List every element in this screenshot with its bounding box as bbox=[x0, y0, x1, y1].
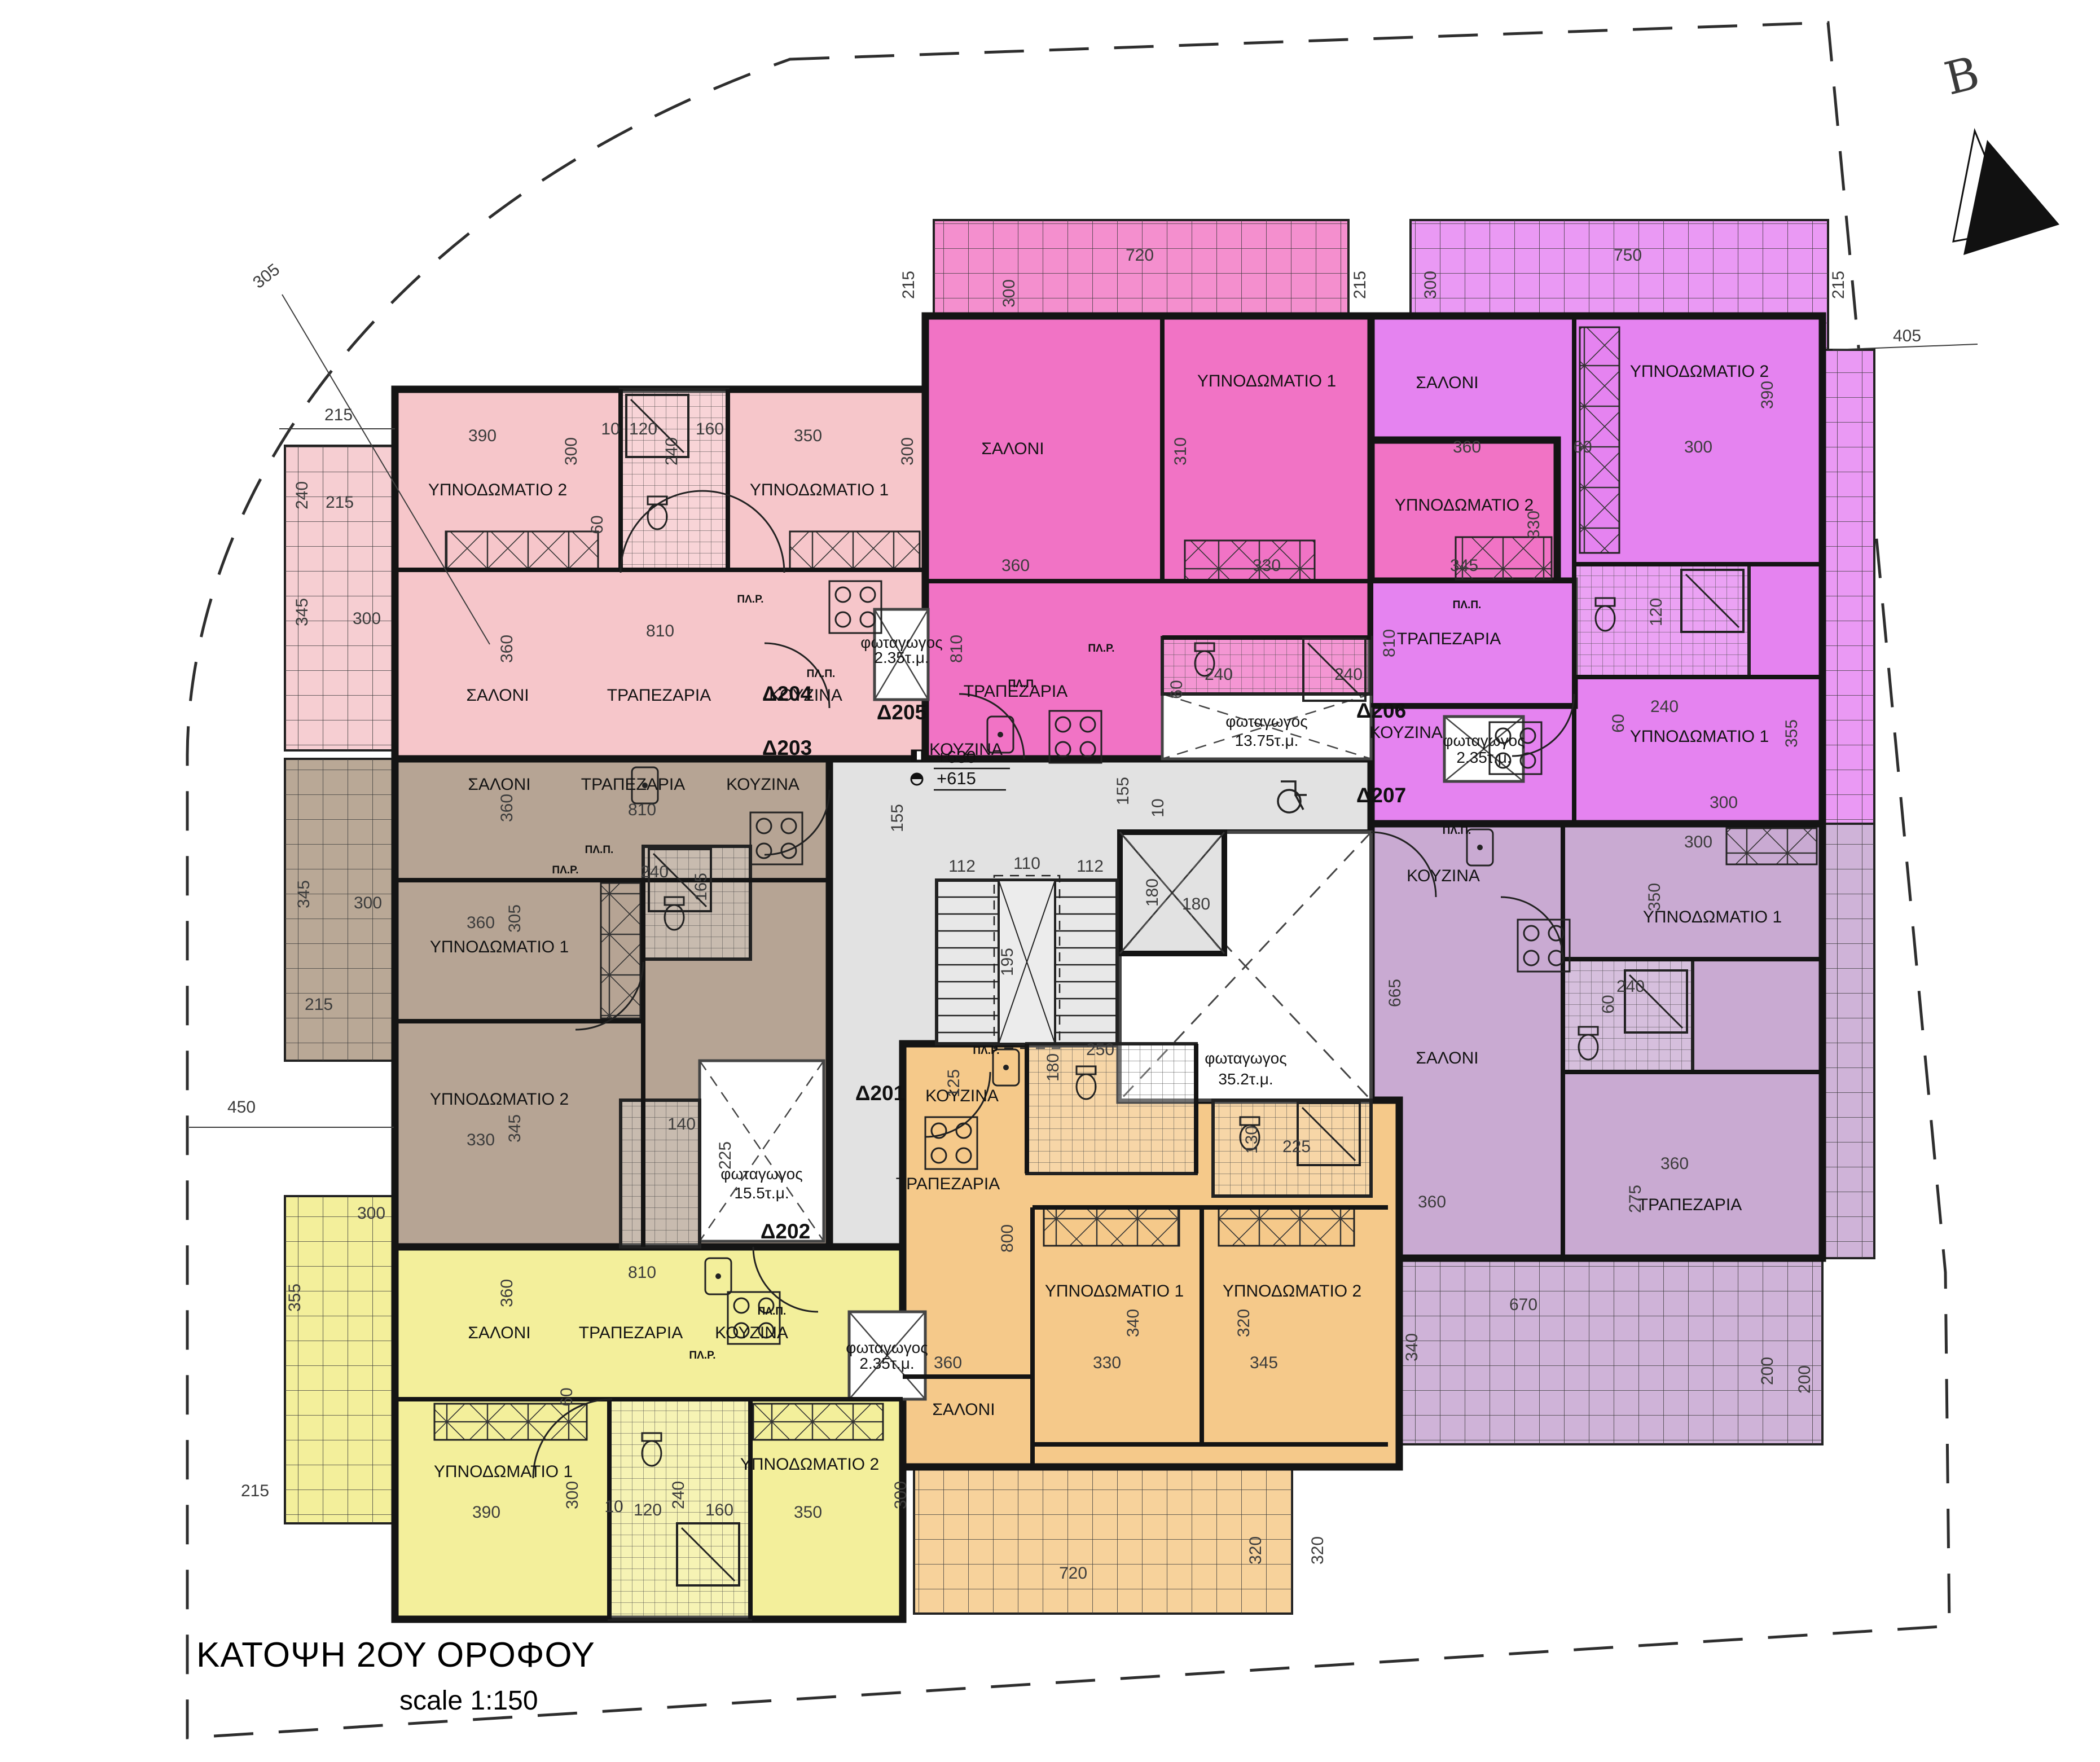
dimension-label: 215 bbox=[241, 1482, 269, 1500]
lightwell-label: 2.35τ.μ. bbox=[859, 1355, 914, 1372]
dimension-label: 110 bbox=[1013, 854, 1040, 873]
room-label: ΥΠΝΟΔΩΜΑΤΙΟ 2 bbox=[1223, 1282, 1361, 1300]
apartment-tag: Δ201 bbox=[855, 1082, 905, 1105]
room-label: ΥΠΝΟΔΩΜΑΤΙΟ 2 bbox=[428, 481, 567, 499]
lightwell-label: φωταγωγος bbox=[846, 1339, 928, 1356]
dimension-label: 275 bbox=[1626, 1185, 1645, 1213]
lightwell-label: 2.35τ.μ. bbox=[874, 649, 929, 666]
dimension-label: 810 bbox=[628, 1263, 656, 1282]
room-label: ΣΑΛΟΝΙ bbox=[468, 775, 530, 794]
title-block: ΚΑΤΟΨΗ 2ΟΥ ΟΡΟΦΟΥ scale 1:150 bbox=[196, 1635, 595, 1716]
dimension-label: 215 bbox=[326, 493, 354, 512]
dimension-label: 360 bbox=[498, 794, 516, 822]
dimension-label: 300 bbox=[891, 1481, 910, 1509]
dimension-label: 120 bbox=[1647, 598, 1666, 626]
appliance-tag: ΠΛ.Ρ. bbox=[689, 1350, 715, 1361]
dimension-label: 160 bbox=[696, 420, 724, 438]
dimension-label: 345 bbox=[1250, 1354, 1278, 1372]
lightwell-label: 35.2τ.μ. bbox=[1218, 1070, 1273, 1088]
dimension-label: 300 bbox=[562, 437, 581, 465]
dimension-label: 330 bbox=[467, 1131, 495, 1149]
dimension-label: 670 bbox=[1509, 1295, 1537, 1314]
room-label: ΥΠΝΟΔΩΜΑΤΙΟ 2 bbox=[430, 1090, 569, 1109]
dimension-label: 720 bbox=[1126, 246, 1154, 265]
room-label: ΣΑΛΟΝΙ bbox=[466, 686, 529, 705]
dimension-label: 160 bbox=[705, 1501, 733, 1519]
appliance-tag: ΠΛ.Π. bbox=[807, 668, 836, 680]
dimension-label: 165 bbox=[692, 873, 710, 901]
appliance-tag: ΠΛ.Ρ. bbox=[737, 594, 763, 605]
dimension-label: 300 bbox=[353, 609, 381, 628]
lightwell-label: 15.5τ.μ. bbox=[734, 1184, 789, 1202]
dimension-label: 125 bbox=[944, 1069, 963, 1097]
room-label: ΣΑΛΟΝΙ bbox=[932, 1400, 995, 1419]
dimension-label: 240 bbox=[1650, 697, 1679, 716]
room-label: ΣΑΛΟΝΙ bbox=[1416, 1049, 1478, 1067]
lightwell-label: φωταγωγος bbox=[1225, 713, 1307, 730]
dimension-label: 215 bbox=[305, 995, 333, 1014]
dimension-label: 350 bbox=[1645, 883, 1664, 911]
room-label: ΚΟΥΖΙΝΑ bbox=[715, 1324, 788, 1342]
dimension-label: 345 bbox=[293, 598, 311, 626]
lightwell-label: φωταγωγος bbox=[720, 1165, 802, 1183]
appliance-tag: ΠΛ.Ρ. bbox=[973, 1045, 999, 1057]
stairwell bbox=[937, 876, 1117, 1048]
dimension-label: 130 bbox=[1242, 1126, 1261, 1154]
dimension-label: 340 bbox=[1403, 1333, 1421, 1361]
dimension-label: 310 bbox=[1171, 437, 1190, 465]
dimension-label: 10 bbox=[604, 1497, 623, 1516]
appliance-tag: ΠΛ.Π. bbox=[1453, 599, 1482, 611]
room-label: ΣΑΛΟΝΙ bbox=[468, 1324, 530, 1342]
dimension-label: 320 bbox=[1234, 1309, 1253, 1337]
room-label: ΤΡΑΠΕΖΑΡΙΑ bbox=[1638, 1196, 1742, 1214]
dimension-label: 360 bbox=[498, 635, 516, 663]
dimension-label: 240 bbox=[1334, 665, 1363, 684]
room-label: ΚΟΥΖΙΝΑ bbox=[1369, 723, 1443, 742]
dimension-label: 810 bbox=[646, 622, 674, 640]
dimension-label: 200 bbox=[1795, 1365, 1814, 1394]
floor-plan-drawing: ΥΠΝΟΔΩΜΑΤΙΟ 2ΥΠΝΟΔΩΜΑΤΙΟ 1ΣΑΛΟΝΙΤΡΑΠΕΖΑΡ… bbox=[0, 0, 2100, 1762]
dimension-label: 300 bbox=[898, 437, 917, 465]
dimension-label: 155 bbox=[888, 804, 907, 832]
dimension-label: 800 bbox=[998, 1224, 1017, 1253]
apartment-tag: Δ203 bbox=[762, 736, 812, 759]
dimension-label: 330 bbox=[1253, 556, 1281, 575]
dimension-label: 360 bbox=[1453, 438, 1481, 456]
dimension-label: 350 bbox=[794, 427, 822, 445]
dimension-label: 390 bbox=[468, 427, 497, 445]
dimension-label: 240 bbox=[640, 863, 669, 881]
plan-title: ΚΑΤΟΨΗ 2ΟΥ ΟΡΟΦΟΥ bbox=[196, 1635, 595, 1675]
north-arrow-icon bbox=[1953, 131, 2059, 255]
dimension-label: 180 bbox=[1182, 895, 1210, 913]
room-label: ΚΟΥΖΙΝΑ bbox=[1407, 867, 1480, 885]
dimension-label: 120 bbox=[634, 1501, 662, 1519]
plan-scale-label: scale 1:150 bbox=[399, 1685, 595, 1716]
dimension-label: 300 bbox=[357, 1204, 385, 1223]
dimension-label: 390 bbox=[1758, 381, 1777, 409]
dimension-label: 330 bbox=[1525, 511, 1543, 539]
level-marker: +615 bbox=[937, 768, 976, 788]
dimension-label: 240 bbox=[1616, 977, 1645, 996]
dimension-label: 60 bbox=[1167, 680, 1186, 698]
dimension-label: 155 bbox=[1114, 777, 1132, 805]
dimension-label: 720 bbox=[1059, 1564, 1087, 1583]
dimension-label: 60 bbox=[588, 515, 607, 534]
lightwell-label: φωταγωγος bbox=[1205, 1049, 1286, 1067]
dimension-label: 215 bbox=[324, 406, 353, 424]
dimension-label: 320 bbox=[1308, 1536, 1327, 1565]
room-label: ΥΠΝΟΔΩΜΑΤΙΟ 1 bbox=[1630, 727, 1769, 746]
dimension-label: 405 bbox=[1893, 327, 1921, 345]
dimension-label: 60 bbox=[1599, 995, 1618, 1013]
dimension-label: 360 bbox=[467, 913, 495, 932]
dimension-label: 300 bbox=[1684, 438, 1712, 456]
dimension-label: 360 bbox=[934, 1354, 962, 1372]
dimension-label: 215 bbox=[1829, 271, 1848, 299]
dimension-label: 10 bbox=[1149, 798, 1167, 817]
dimension-label: 750 bbox=[1614, 246, 1642, 265]
elevator bbox=[1120, 832, 1224, 953]
level-marker: +630 bbox=[937, 747, 976, 767]
dimension-label: 300 bbox=[1421, 271, 1440, 299]
dimension-label: 390 bbox=[472, 1503, 500, 1522]
apartment-tag: Δ204 bbox=[762, 682, 812, 705]
dimension-label: 300 bbox=[354, 894, 382, 912]
room-label: ΤΡΑΠΕΖΑΡΙΑ bbox=[896, 1175, 1000, 1193]
room-label: ΣΑΛΟΝΙ bbox=[1416, 374, 1478, 392]
room-label: ΤΡΑΠΕΖΑΡΙΑ bbox=[581, 775, 685, 794]
dimension-label: 355 bbox=[285, 1284, 304, 1312]
lightwell-label: 2.35τ.μ. bbox=[1456, 749, 1511, 766]
dimension-label: 112 bbox=[1077, 857, 1104, 876]
dimension-label: 345 bbox=[1450, 556, 1478, 575]
dimension-label: 240 bbox=[662, 437, 681, 465]
room-label: ΤΡΑΠΕΖΑΡΙΑ bbox=[579, 1324, 683, 1342]
room-label: ΥΠΝΟΔΩΜΑΤΙΟ 1 bbox=[434, 1462, 573, 1481]
dimension-label: 305 bbox=[506, 904, 524, 933]
dimension-label: 300 bbox=[1710, 793, 1738, 812]
appliance-tag: ΠΛ.Ρ. bbox=[1088, 643, 1114, 654]
dimension-label: 180 bbox=[1044, 1053, 1062, 1082]
dimension-label: 60 bbox=[557, 1387, 576, 1406]
dimension-label: 300 bbox=[1684, 833, 1712, 851]
dimension-label: 250 bbox=[1086, 1040, 1114, 1059]
dimension-label: 120 bbox=[629, 420, 657, 438]
dimension-label: 240 bbox=[1205, 665, 1233, 684]
appliance-tag: ΠΛ.Π. bbox=[758, 1306, 787, 1317]
appliance-tag: ΠΛ.Π. bbox=[585, 844, 614, 856]
room-label: ΥΠΝΟΔΩΜΑΤΙΟ 1 bbox=[750, 481, 889, 499]
dimension-label: 330 bbox=[1093, 1354, 1121, 1372]
apartment-tag: Δ205 bbox=[877, 701, 926, 724]
room-label: ΥΠΝΟΔΩΜΑΤΙΟ 1 bbox=[430, 938, 569, 956]
dimension-label: 200 bbox=[1758, 1357, 1777, 1385]
dimension-label: 340 bbox=[1124, 1309, 1143, 1337]
room-label: ΣΑΛΟΝΙ bbox=[981, 440, 1044, 458]
dimension-label: 140 bbox=[667, 1115, 696, 1133]
dimension-label: 240 bbox=[669, 1481, 688, 1509]
room-label: ΥΠΝΟΔΩΜΑΤΙΟ 2 bbox=[740, 1455, 879, 1474]
lightwell-label: φωταγωγος bbox=[1443, 732, 1525, 749]
room-label: ΤΡΑΠΕΖΑΡΙΑ bbox=[607, 686, 711, 705]
dimension-label: 240 bbox=[293, 481, 311, 509]
dimension-label: 320 bbox=[1246, 1536, 1265, 1565]
room-label: ΥΠΝΟΔΩΜΑΤΙΟ 2 bbox=[1395, 496, 1534, 515]
dimension-label: 300 bbox=[1000, 279, 1018, 307]
dimension-label: 112 bbox=[948, 857, 976, 876]
dimension-label: 225 bbox=[1282, 1137, 1311, 1156]
room-label: ΥΠΝΟΔΩΜΑΤΙΟ 1 bbox=[1197, 372, 1336, 390]
floor-plan-canvas: ΥΠΝΟΔΩΜΑΤΙΟ 2ΥΠΝΟΔΩΜΑΤΙΟ 1ΣΑΛΟΝΙΤΡΑΠΕΖΑΡ… bbox=[0, 0, 2100, 1762]
dimension-label: 355 bbox=[1782, 719, 1801, 748]
dimension-label: 305 bbox=[249, 260, 283, 292]
apartment-tag: Δ207 bbox=[1356, 784, 1406, 807]
room-label: ΚΟΥΖΙΝΑ bbox=[726, 775, 799, 794]
room-label: ΥΠΝΟΔΩΜΑΤΙΟ 1 bbox=[1045, 1282, 1184, 1300]
dimension-label: 810 bbox=[628, 801, 656, 819]
dimension-label: 360 bbox=[1660, 1154, 1689, 1173]
appliance-tag: ΠΛ.Π. bbox=[1443, 825, 1471, 837]
dimension-label: 60 bbox=[1609, 714, 1628, 732]
dimension-label: 60 bbox=[1573, 438, 1592, 456]
apartment-tag: Δ206 bbox=[1356, 699, 1406, 722]
appliance-tag: ΠΛ.Ρ. bbox=[552, 864, 578, 876]
dimension-label: 450 bbox=[227, 1098, 256, 1117]
dimension-label: 810 bbox=[1380, 629, 1399, 657]
room-label: ΤΡΑΠΕΖΑΡΙΑ bbox=[1397, 630, 1501, 648]
dimension-label: 10 bbox=[601, 420, 620, 438]
apartment-tag: Δ202 bbox=[761, 1220, 810, 1243]
room-label: ΥΠΝΟΔΩΜΑΤΙΟ 2 bbox=[1630, 362, 1769, 381]
dimension-label: 345 bbox=[295, 880, 313, 908]
dimension-label: 350 bbox=[794, 1503, 822, 1522]
appliance-tag: ΠΛ.Π. bbox=[1008, 678, 1037, 690]
dimension-label: 665 bbox=[1386, 979, 1404, 1007]
dimension-label: 345 bbox=[506, 1114, 524, 1143]
dimension-label: 215 bbox=[899, 271, 918, 299]
lightwell-label: 13.75τ.μ. bbox=[1235, 732, 1299, 749]
dimension-label: 360 bbox=[1001, 556, 1030, 575]
dimension-label: 215 bbox=[1351, 271, 1369, 299]
dimension-label: 360 bbox=[498, 1279, 516, 1307]
dimension-label: 195 bbox=[998, 948, 1017, 976]
dimension-label: 360 bbox=[1418, 1193, 1446, 1211]
dimension-label: 300 bbox=[563, 1481, 582, 1509]
dimension-label: 180 bbox=[1143, 878, 1162, 907]
dimension-label: 810 bbox=[947, 635, 966, 663]
